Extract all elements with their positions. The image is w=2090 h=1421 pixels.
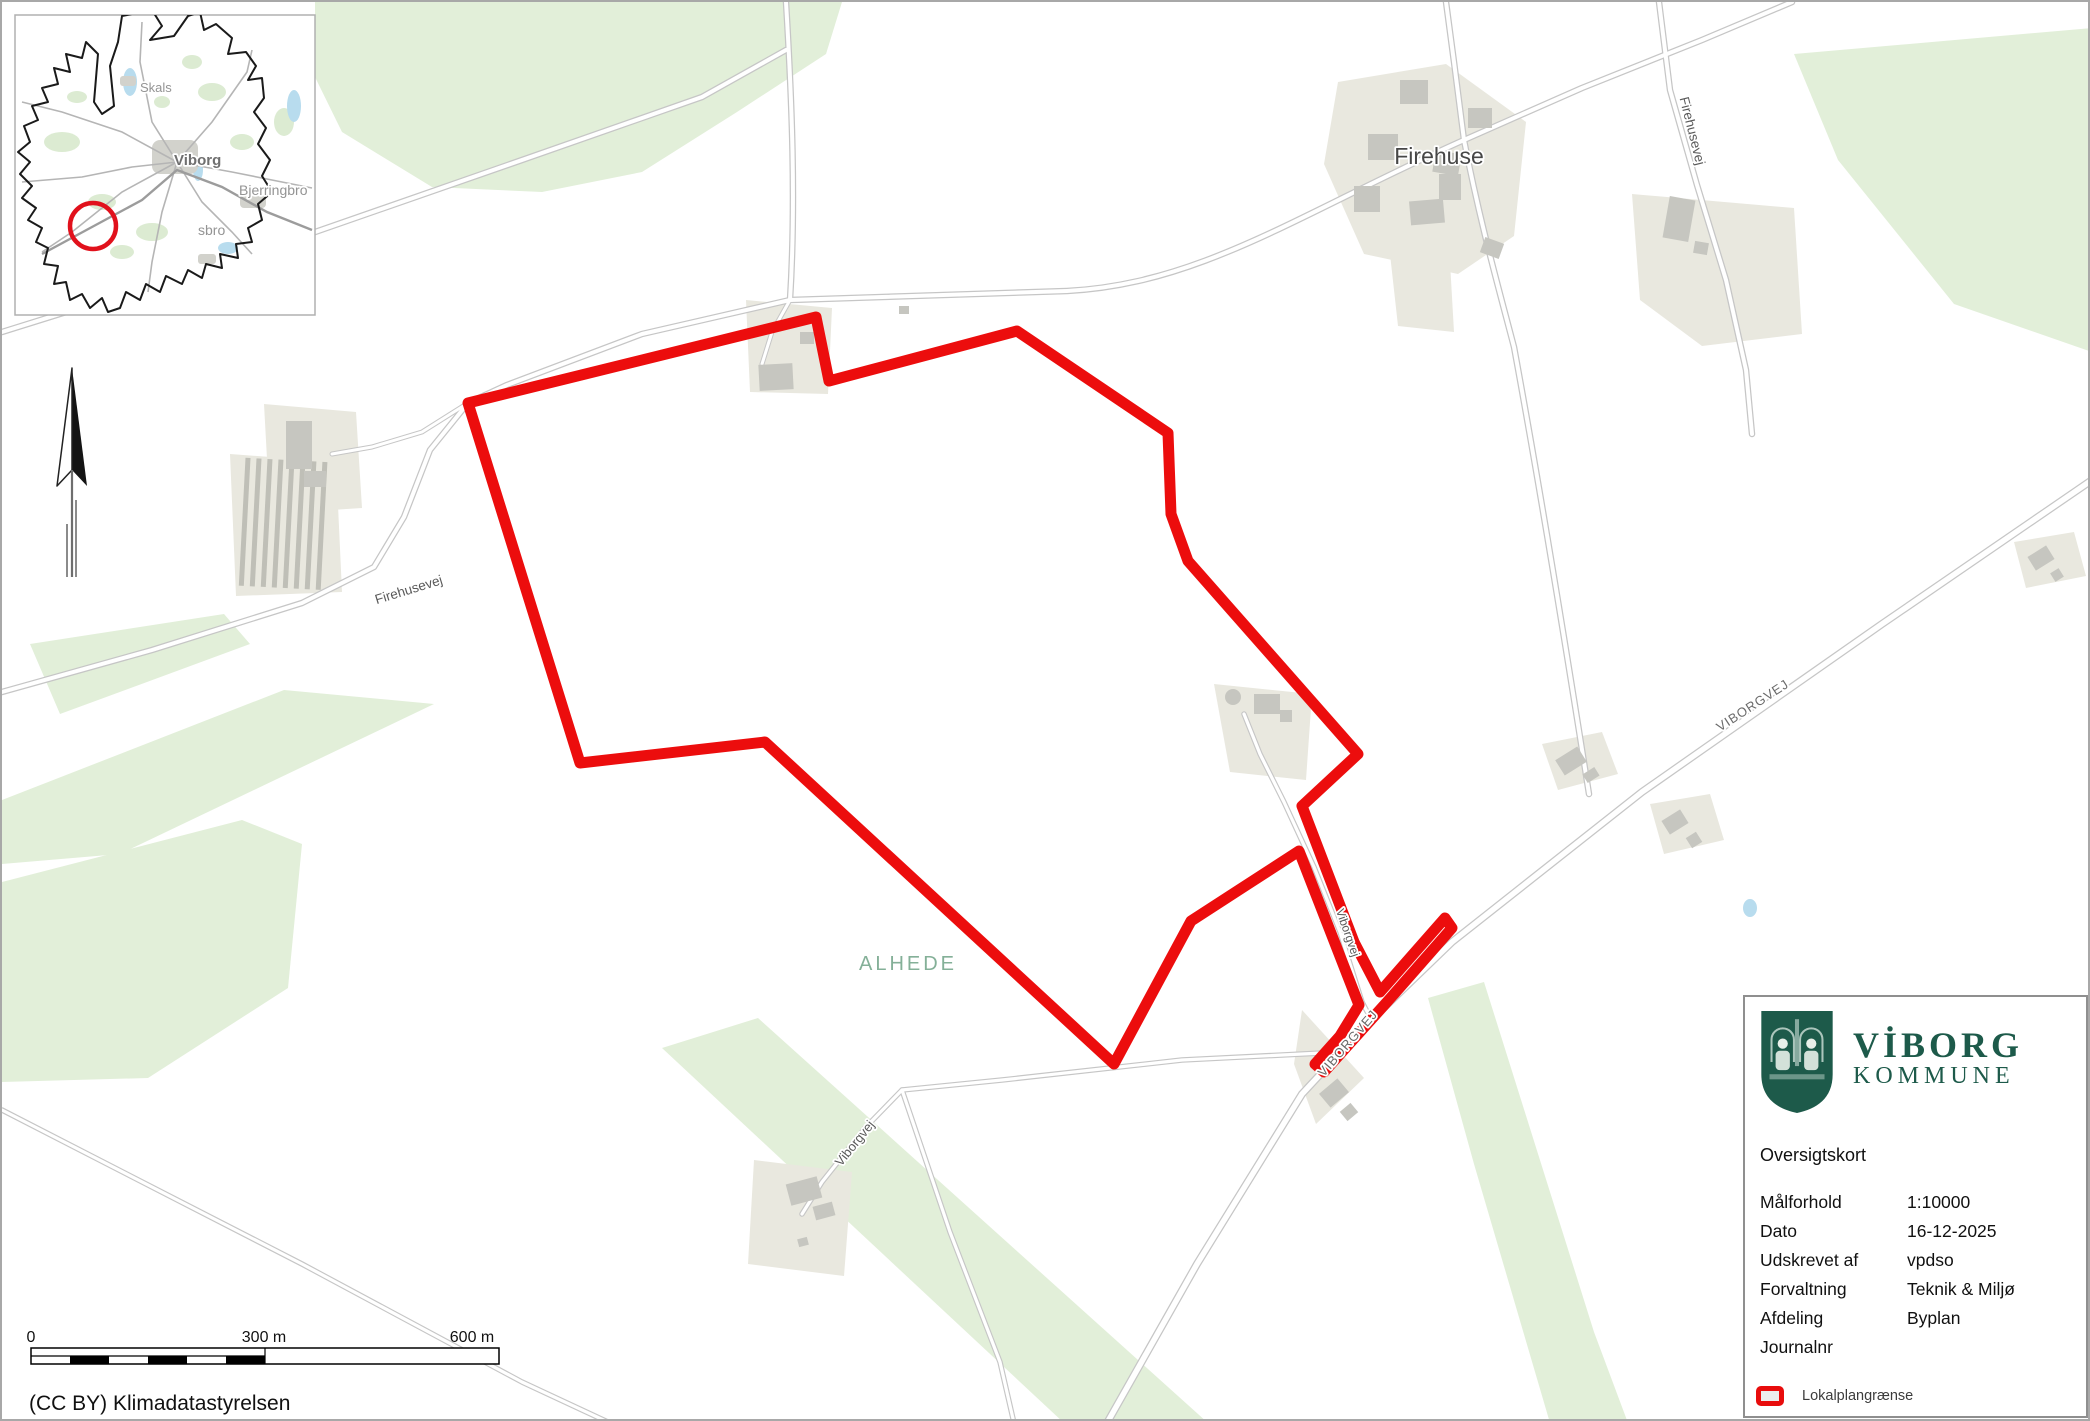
meta-value: 16-12-2025 [1907,1221,2086,1242]
legend: Lokalplangrænse [1756,1386,1913,1406]
scale-label-300: 300 m [242,1329,286,1346]
road-label-viborgvej-upper: VIBORGVEJ [1713,676,1791,734]
brand-wordmark: VİBORG KOMMUNE [1853,1027,2023,1091]
inset-label-viborg: Viborg [174,152,221,169]
info-panel: VİBORG KOMMUNE Oversigtskort Målforhold … [1743,995,2088,1418]
lokalplan-boundary-legend-icon [1756,1386,1784,1406]
place-label-firehuse: Firehuse [1394,143,1483,169]
brand-name: VİBORG [1853,1027,2023,1063]
scale-label-600: 600 m [450,1329,494,1346]
inset-label-skals: Skals [140,80,172,95]
meta-label: Afdeling [1760,1308,1907,1329]
meta-row-dato: Dato 16-12-2025 [1760,1221,2086,1242]
meta-label: Udskrevet af [1760,1250,1907,1271]
meta-label: Dato [1760,1221,1907,1242]
viborg-kommune-coat-of-arms-icon [1759,1009,1835,1115]
meta-label: Journalnr [1760,1337,1907,1358]
meta-label: Målforhold [1760,1192,1907,1213]
metadata-rows: Målforhold 1:10000 Dato 16-12-2025 Udskr… [1745,1166,2086,1358]
inset-label-bjerringbro: Bjerringbro [239,182,308,198]
meta-value: vpdso [1907,1250,2086,1271]
brand-header: VİBORG KOMMUNE [1745,997,2086,1115]
meta-value: Byplan [1907,1308,2086,1329]
meta-value [1907,1337,2086,1358]
scale-label-0: 0 [27,1329,36,1346]
map-print-page: Firehuse Firehusevej Firehusevej VIBORGV… [0,0,2090,1421]
meta-row-journalnr: Journalnr [1760,1337,2086,1358]
meta-row-forvaltning: Forvaltning Teknik & Miljø [1760,1279,2086,1300]
pond [1743,899,1757,917]
meta-row-maalforhold: Målforhold 1:10000 [1760,1192,2086,1213]
area-label-alhede: ALHEDE [859,953,957,975]
meta-row-afdeling: Afdeling Byplan [1760,1308,2086,1329]
brand-subname: KOMMUNE [1853,1063,2023,1091]
meta-value: Teknik & Miljø [1907,1279,2086,1300]
inset-map: Skals Viborg Bjerringbro sbro [15,10,315,315]
north-arrow-icon [57,368,87,577]
meta-value: 1:10000 [1907,1192,2086,1213]
legend-label: Lokalplangrænse [1802,1388,1913,1404]
map-type-title: Oversigtskort [1745,1115,2086,1166]
attribution-text: (CC BY) Klimadatastyrelsen [29,1392,290,1415]
lokalplan-boundary [468,317,1452,1072]
inset-label-sbro: sbro [198,222,225,238]
road-label-firehusevej-w: Firehusevej [373,572,444,607]
meta-label: Forvaltning [1760,1279,1907,1300]
meta-row-udskrevet-af: Udskrevet af vpdso [1760,1250,2086,1271]
map-labels: Firehuse Firehusevej Firehusevej VIBORGV… [373,95,1791,1169]
